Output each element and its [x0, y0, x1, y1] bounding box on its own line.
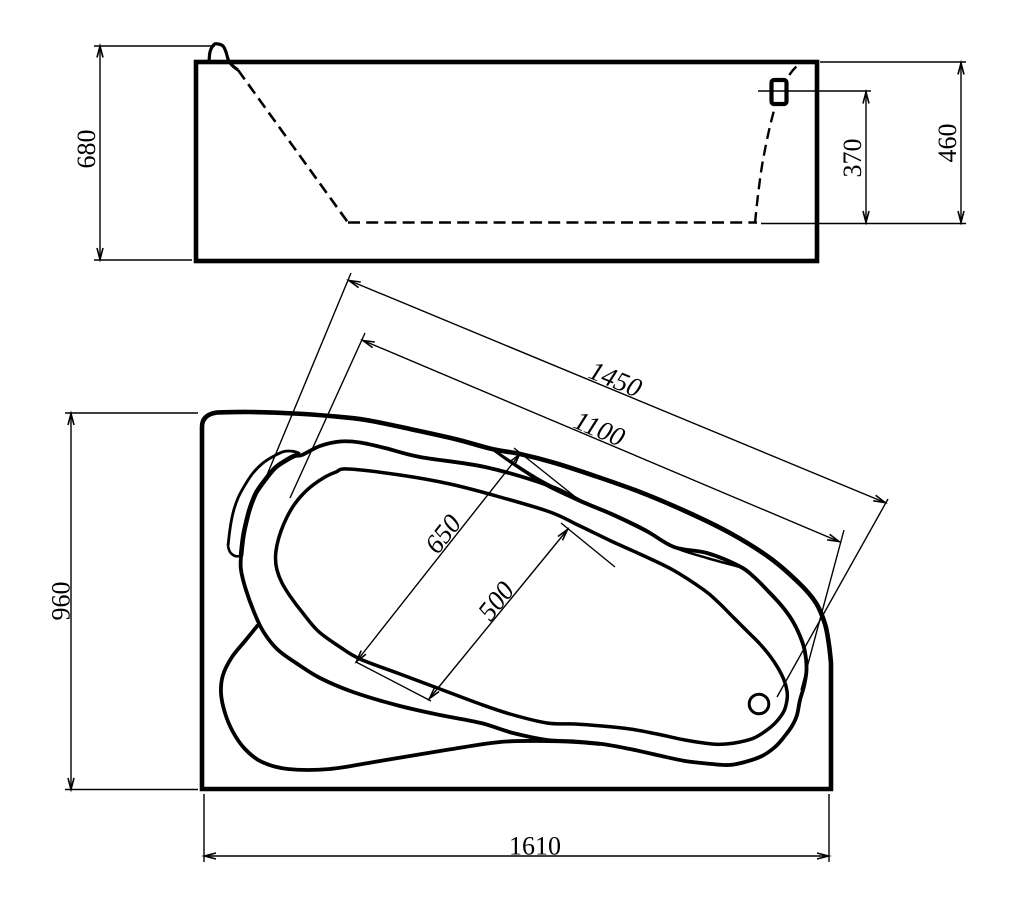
svg-text:650: 650 — [419, 508, 468, 559]
svg-text:1450: 1450 — [585, 355, 647, 404]
svg-text:500: 500 — [472, 575, 521, 626]
svg-text:370: 370 — [838, 139, 867, 178]
svg-text:1100: 1100 — [570, 405, 630, 453]
svg-text:680: 680 — [72, 130, 101, 169]
svg-text:1610: 1610 — [509, 832, 561, 861]
svg-text:960: 960 — [47, 582, 76, 621]
svg-text:460: 460 — [933, 124, 962, 163]
